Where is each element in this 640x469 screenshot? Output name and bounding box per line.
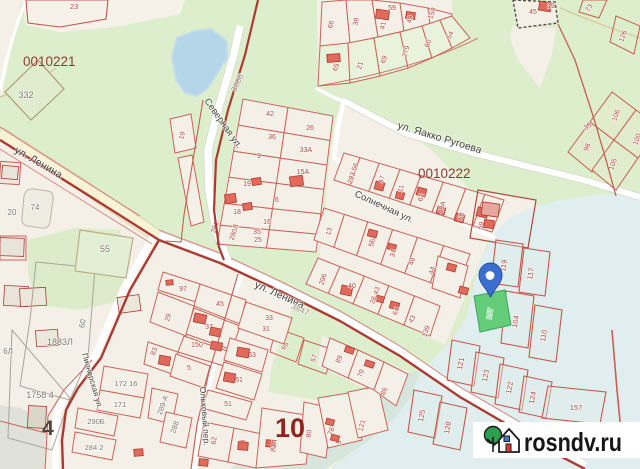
svg-text:25: 25 bbox=[254, 237, 262, 244]
svg-text:42: 42 bbox=[266, 111, 274, 118]
svg-text:55: 55 bbox=[100, 244, 110, 254]
svg-text:16: 16 bbox=[263, 219, 271, 226]
svg-text:171: 171 bbox=[114, 400, 127, 409]
svg-text:74: 74 bbox=[31, 203, 40, 212]
svg-text:0010222: 0010222 bbox=[418, 166, 471, 181]
svg-text:290Б: 290Б bbox=[87, 417, 105, 426]
svg-text:59: 59 bbox=[388, 5, 396, 12]
svg-text:35: 35 bbox=[253, 229, 261, 236]
svg-text:150: 150 bbox=[191, 342, 203, 349]
svg-text:rosndv.ru: rosndv.ru bbox=[524, 427, 622, 457]
svg-text:332: 332 bbox=[18, 90, 33, 100]
svg-text:0010221: 0010221 bbox=[23, 54, 76, 69]
svg-text:10: 10 bbox=[275, 413, 305, 443]
svg-text:157: 157 bbox=[570, 403, 583, 412]
svg-text:18: 18 bbox=[233, 209, 241, 216]
svg-text:51: 51 bbox=[224, 401, 232, 408]
svg-text:19: 19 bbox=[547, 3, 555, 10]
svg-text:45: 45 bbox=[529, 9, 537, 16]
svg-text:284 2: 284 2 bbox=[85, 443, 104, 452]
svg-text:172 16: 172 16 bbox=[115, 379, 138, 388]
svg-text:5: 5 bbox=[187, 365, 191, 372]
svg-text:4: 4 bbox=[42, 417, 54, 440]
svg-text:1758 4: 1758 4 bbox=[26, 390, 54, 400]
svg-text:6Л: 6Л bbox=[3, 347, 13, 356]
svg-text:36: 36 bbox=[268, 134, 276, 141]
svg-text:9: 9 bbox=[257, 153, 261, 160]
svg-text:6: 6 bbox=[275, 197, 279, 204]
svg-text:33А: 33А bbox=[300, 147, 313, 154]
svg-text:23: 23 bbox=[70, 2, 78, 11]
svg-text:1883Л: 1883Л bbox=[47, 337, 73, 347]
svg-text:15А: 15А bbox=[297, 169, 310, 176]
svg-text:31: 31 bbox=[262, 326, 270, 333]
svg-text:80: 80 bbox=[305, 429, 313, 438]
svg-text:45: 45 bbox=[216, 301, 224, 308]
svg-text:97: 97 bbox=[179, 286, 187, 293]
svg-text:19: 19 bbox=[243, 181, 251, 188]
svg-text:26: 26 bbox=[306, 125, 314, 132]
svg-text:20: 20 bbox=[8, 208, 17, 217]
svg-text:61: 61 bbox=[235, 377, 243, 384]
svg-text:40: 40 bbox=[348, 283, 356, 290]
svg-text:33: 33 bbox=[265, 315, 273, 322]
